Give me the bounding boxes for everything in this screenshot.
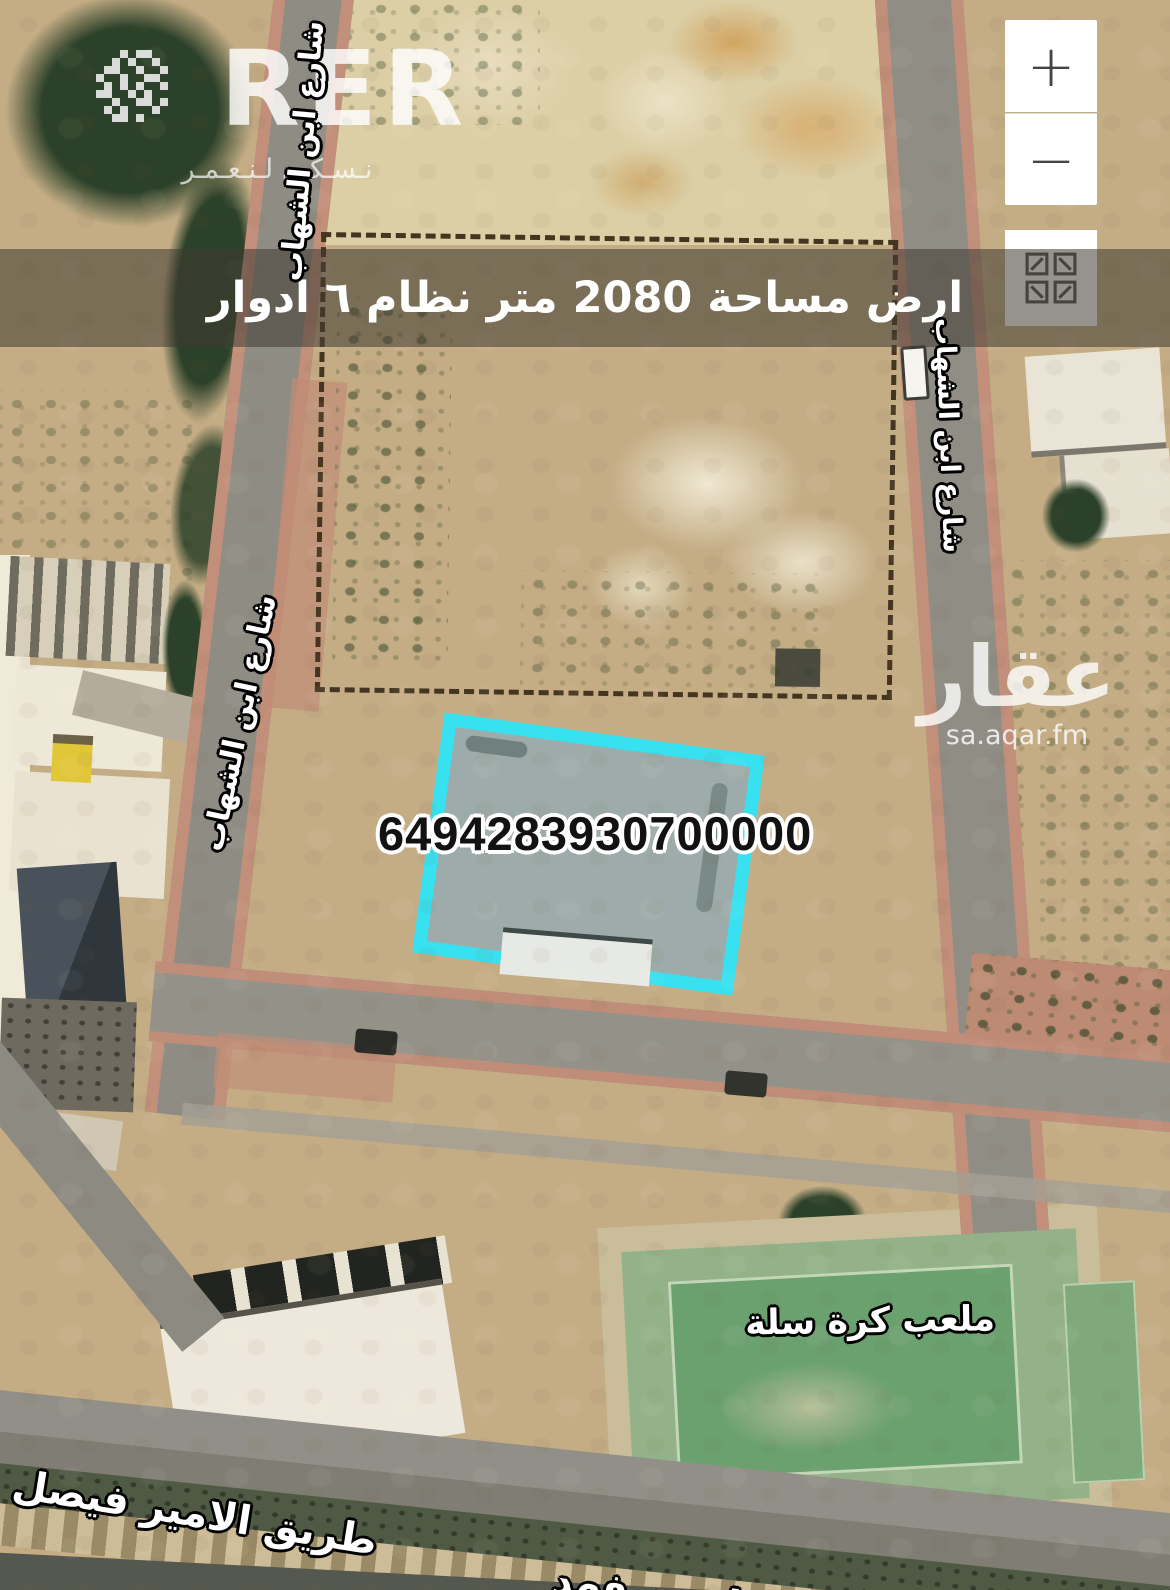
zoom-out-button[interactable]: − <box>1005 113 1097 205</box>
plus-icon: + <box>1027 32 1076 100</box>
listing-banner: ارض مساحة 2080 متر نظام ٦ ادوار <box>0 249 1170 347</box>
car-dark-2 <box>724 1070 768 1098</box>
listing-banner-text: ارض مساحة 2080 متر نظام ٦ ادوار <box>207 273 963 323</box>
fenced-plot-scrub <box>332 297 452 669</box>
fenced-plot-scrub-bottom <box>520 570 822 694</box>
parcel-building <box>499 927 652 986</box>
aqar-watermark: عقار sa.aqar.fm <box>912 638 1122 773</box>
tree-ne <box>1032 468 1120 563</box>
rer-logo-text: RER <box>220 22 469 157</box>
aqar-logo-text: عقار <box>912 638 1122 718</box>
rer-qr-logo-icon <box>88 48 184 140</box>
rer-tagline: نـسـكـن لـنـعـمـر <box>82 154 472 185</box>
building-shaded-roof <box>5 556 170 664</box>
car-dark-1 <box>354 1028 398 1056</box>
street-label-ibn-alshihab-right: شارع ابن الشهاب <box>925 322 971 553</box>
minus-icon: − <box>1027 126 1076 194</box>
poi-label-basketball-court: ملعب كرة سلة <box>775 1300 996 1342</box>
building-ne-1 <box>1025 347 1167 457</box>
parcel-number-label: 6494283930700000 <box>378 806 806 861</box>
satellite-map[interactable]: RER نـسـكـن لـنـعـمـر عقار sa.aqar.fm شا… <box>0 0 1170 1590</box>
court-worn-patch <box>717 1358 901 1457</box>
small-court-east <box>1063 1280 1145 1483</box>
zoom-in-button[interactable]: + <box>1005 20 1097 112</box>
yellow-structure <box>51 734 93 783</box>
parcel-smudge <box>465 735 529 759</box>
